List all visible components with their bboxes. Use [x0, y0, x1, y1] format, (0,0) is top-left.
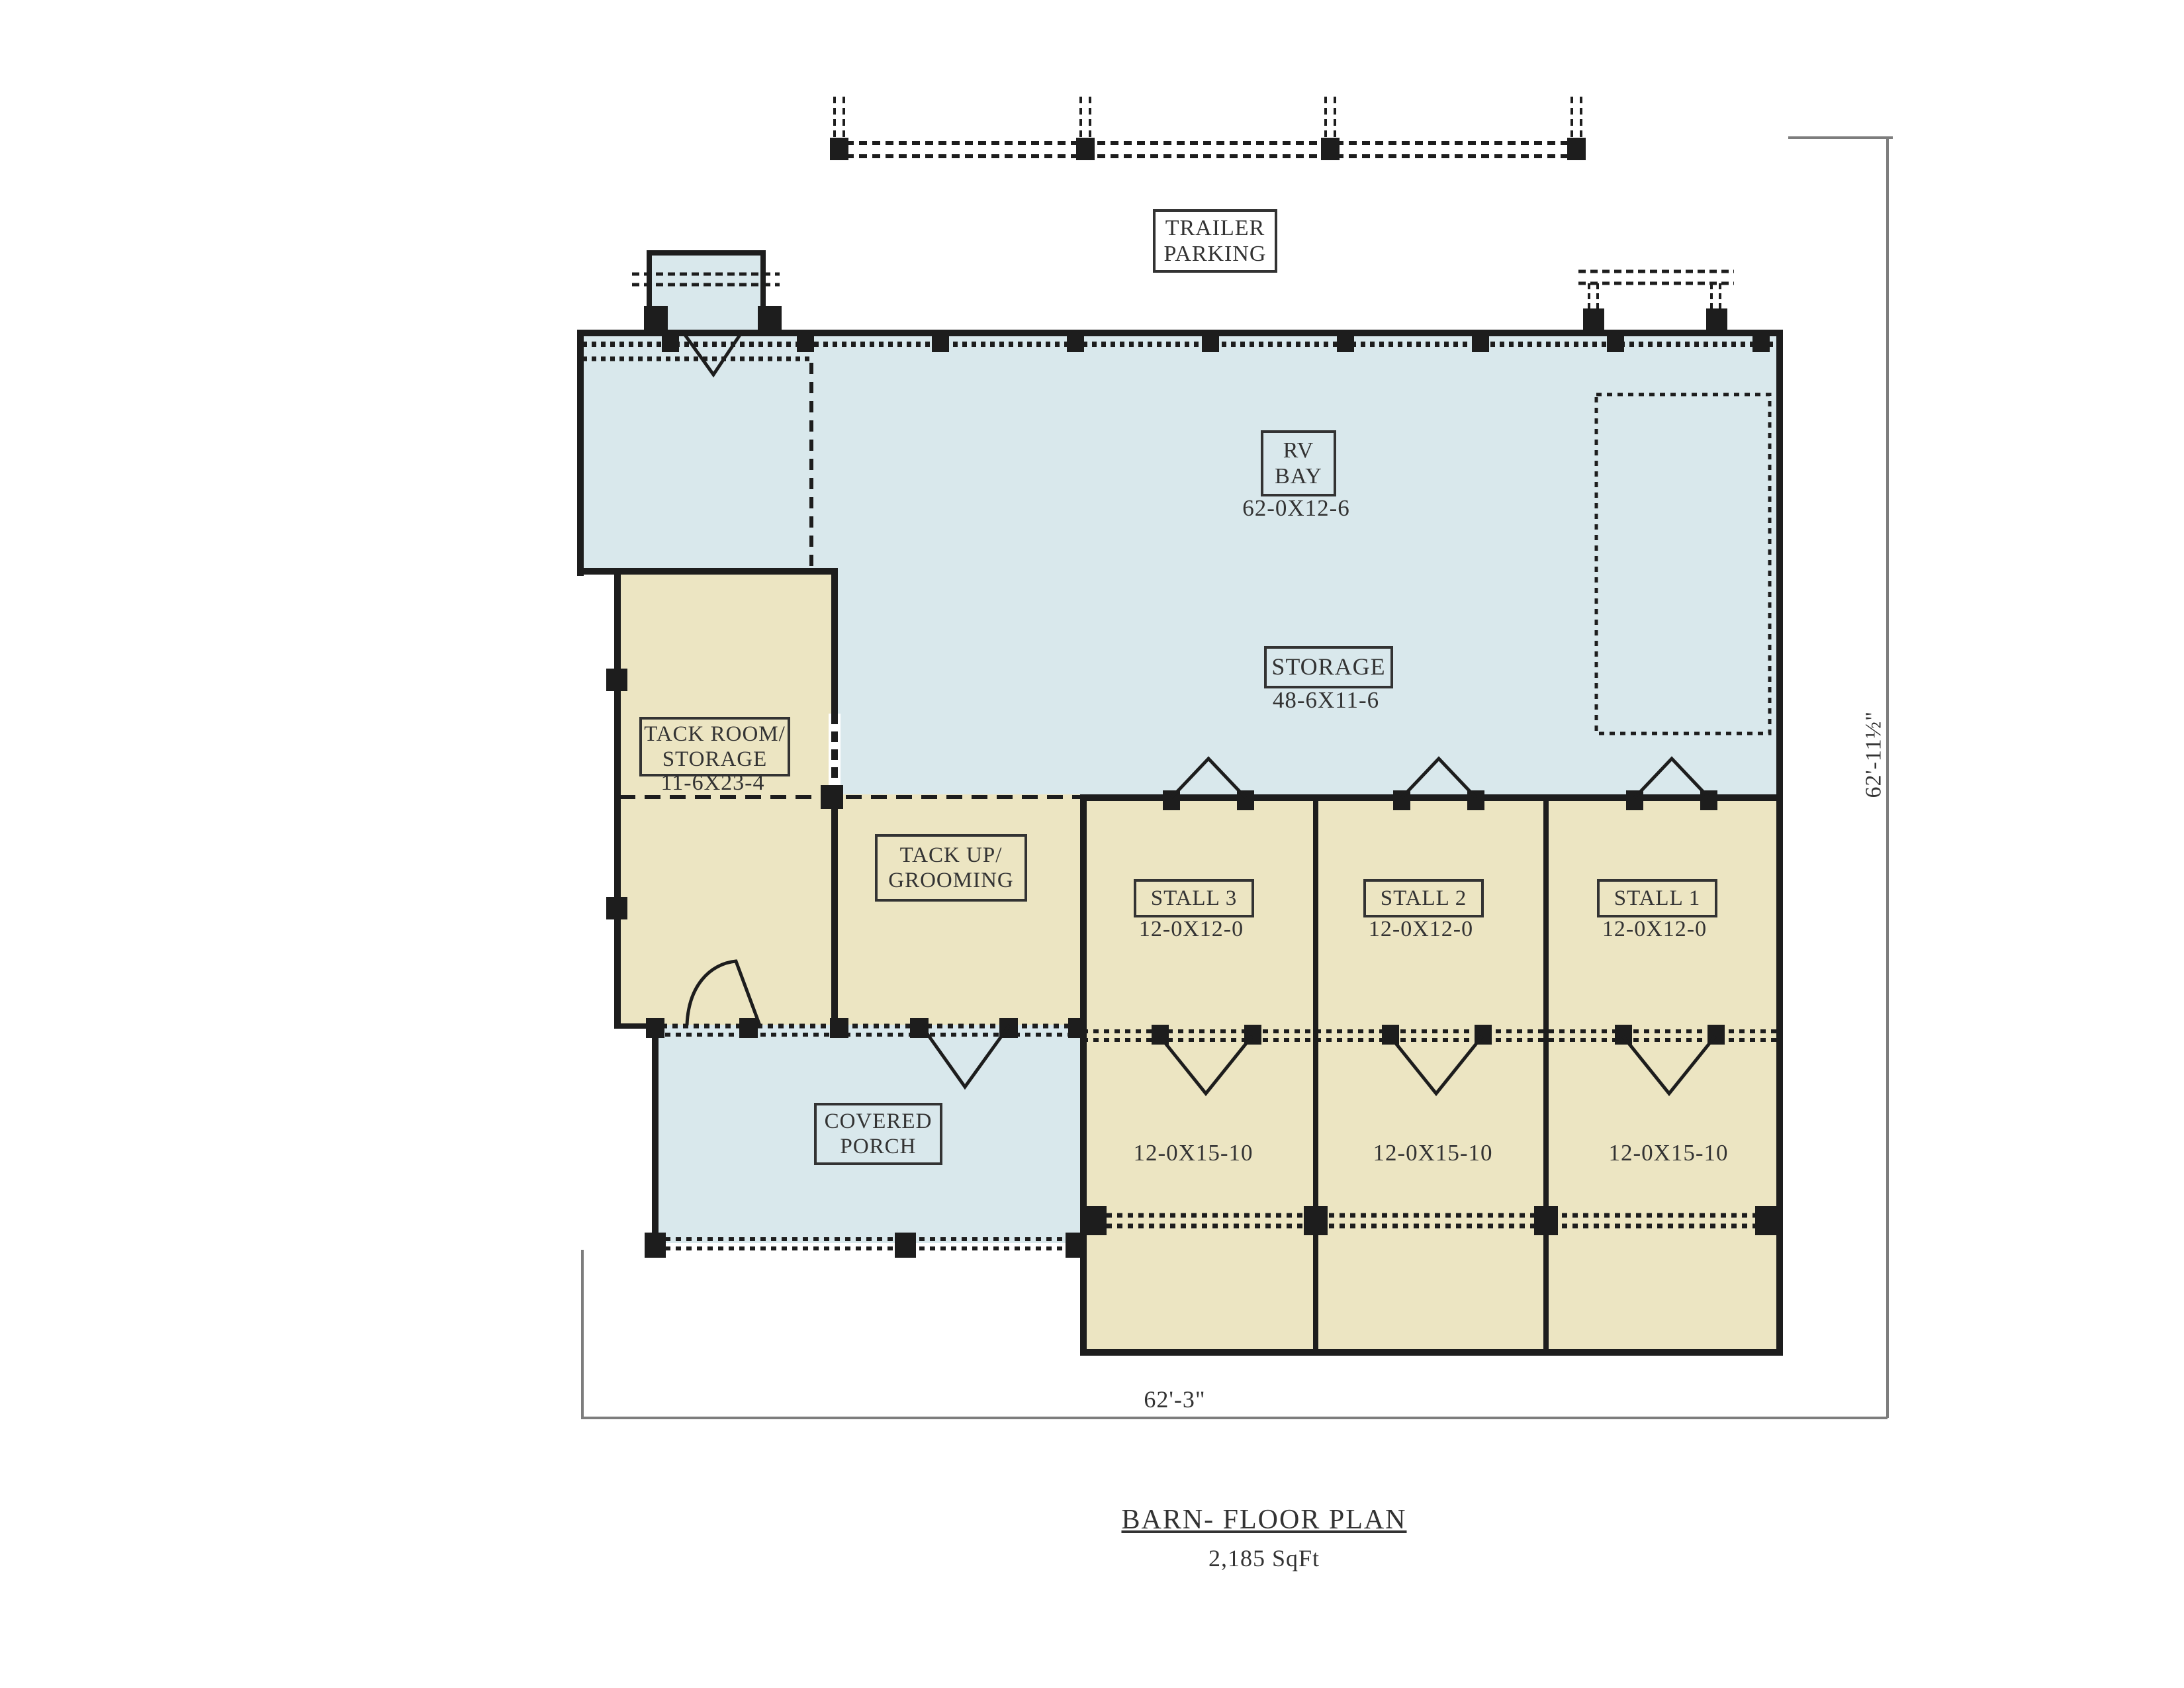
- stall-divider-a: [1313, 801, 1318, 1036]
- bottom-dimension-text: 62'-3": [1109, 1386, 1241, 1414]
- covered-porch-line1: COVERED: [825, 1109, 933, 1134]
- right-wall: [1776, 330, 1783, 1356]
- stall2-line1: STALL 2: [1381, 886, 1467, 911]
- stall-runs-extension-area: [1083, 1243, 1779, 1349]
- grooming-area: [617, 794, 1083, 1026]
- tack-up-line2: GROOMING: [888, 868, 1014, 893]
- trailer-parking-line2: PARKING: [1163, 241, 1266, 267]
- trailer-parking-stubs: [835, 97, 1581, 139]
- stalls-top-wall: [1080, 794, 1783, 801]
- tack-room-dim: 11-6X23-4: [641, 770, 785, 796]
- stall1-dim: 12-0X12-0: [1582, 916, 1727, 942]
- left-upper-wall: [577, 330, 584, 576]
- storage-label: STORAGE: [1264, 646, 1393, 688]
- barn-floor-plan-sheet: TRAILER PARKING RV BAY 62-0X12-6 STORAGE…: [0, 0, 2184, 1688]
- stall3-dim: 12-0X12-0: [1118, 916, 1264, 942]
- stall2-label: STALL 2: [1363, 879, 1484, 917]
- right-dimension-text: 62'-11½": [1860, 679, 1886, 831]
- bottom-wall: [1080, 1349, 1783, 1356]
- floor-plan-drawing: [0, 0, 2184, 1688]
- stalls-left-wall: [1080, 794, 1087, 1356]
- tack-room-label: TACK ROOM/ STORAGE: [639, 717, 790, 776]
- stall3-line1: STALL 3: [1151, 886, 1238, 911]
- stall2-dim: 12-0X12-0: [1348, 916, 1494, 942]
- run-divider-b: [1543, 1036, 1549, 1350]
- storage-dim: 48-6X11-6: [1257, 687, 1394, 714]
- covered-porch-label: COVERED PORCH: [814, 1103, 942, 1165]
- run1-dim: 12-0X15-10: [1596, 1140, 1741, 1167]
- tack-up-label: TACK UP/ GROOMING: [875, 834, 1027, 902]
- sheet-title: BARN- FLOOR PLAN: [1066, 1504, 1463, 1536]
- run-divider-a: [1313, 1036, 1318, 1350]
- porch-left-wall: [652, 1023, 659, 1248]
- stall3-label: STALL 3: [1134, 879, 1254, 917]
- rv-bay-line2: BAY: [1275, 463, 1322, 489]
- tack-room-line2: STORAGE: [662, 747, 768, 772]
- run3-dim: 12-0X15-10: [1120, 1140, 1266, 1167]
- storage-line1: STORAGE: [1271, 653, 1385, 681]
- rv-bay-label: RV BAY: [1261, 430, 1336, 496]
- stall-divider-b: [1543, 801, 1549, 1036]
- stall1-label: STALL 1: [1597, 879, 1717, 917]
- trailer-parking-label: TRAILER PARKING: [1153, 209, 1277, 273]
- run2-dim: 12-0X15-10: [1360, 1140, 1506, 1167]
- covered-porch-line2: PORCH: [840, 1134, 916, 1159]
- rv-bay-line1: RV: [1283, 438, 1314, 463]
- vestibule-top-wall: [647, 250, 766, 256]
- tack-room-line1: TACK ROOM/: [644, 722, 786, 747]
- trailer-parking-structure: [830, 97, 1586, 160]
- tack-up-line1: TACK UP/: [900, 843, 1003, 868]
- stall1-line1: STALL 1: [1614, 886, 1701, 911]
- sheet-area: 2,185 SqFt: [1066, 1545, 1463, 1573]
- rv-bay-dim: 62-0X12-6: [1228, 495, 1364, 522]
- right-canopy-structure: [1578, 271, 1734, 334]
- trailer-parking-line1: TRAILER: [1165, 215, 1265, 241]
